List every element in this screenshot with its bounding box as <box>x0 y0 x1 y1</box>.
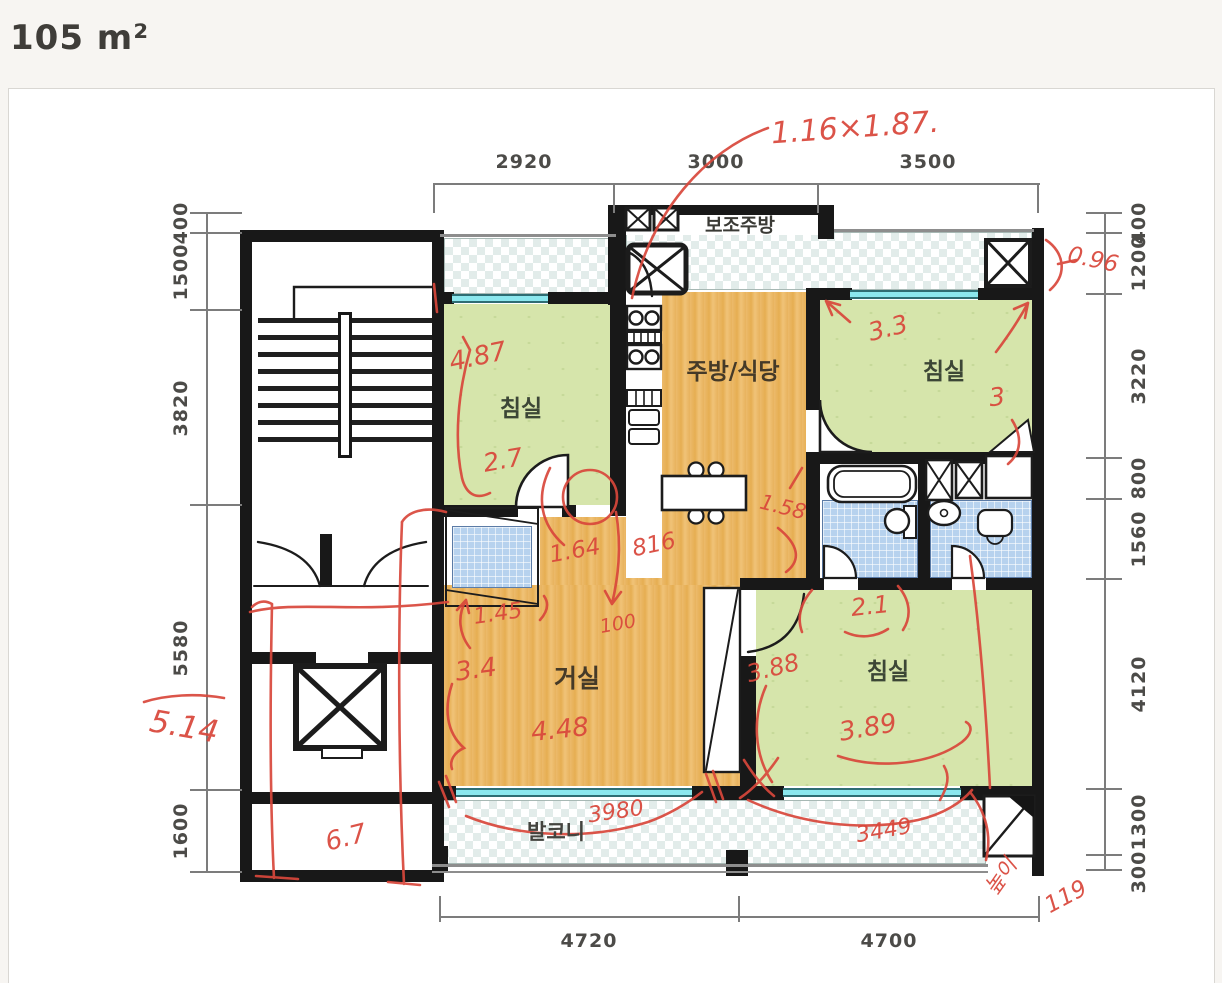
red-bracket-388 <box>740 686 778 798</box>
red-hash-living <box>439 776 456 807</box>
red-wavy-corridor <box>250 602 448 612</box>
floor-plan: 2920 3000 3500 400 1500 3820 5580 1600 4… <box>0 0 1222 982</box>
red-hash-balcony <box>706 771 723 802</box>
room-label-balcony: 발코니 <box>527 816 585 846</box>
room-label-bedroom3: 침실 <box>867 652 909 686</box>
red-circle-door <box>563 470 617 524</box>
room-label-bedroom1: 침실 <box>500 389 542 423</box>
red-arrow-bed2-right <box>996 303 1028 352</box>
room-label-sub-kitchen: 보조주방 <box>705 211 775 238</box>
red-ink-layer <box>0 0 1222 982</box>
red-vline-a <box>388 522 420 885</box>
red-vline-bed3 <box>970 556 990 788</box>
annotation-living-depth: 3.4 <box>453 652 498 687</box>
annotation-living-width: 4.48 <box>530 712 591 748</box>
room-label-living: 거실 <box>554 659 600 695</box>
red-curve-bed2-3 <box>1008 420 1019 464</box>
annotation-bed2-depth: 3 <box>988 382 1007 413</box>
red-tick-bed1-wall <box>434 284 437 312</box>
red-hook-hall <box>402 510 446 522</box>
room-label-bedroom2: 침실 <box>923 352 965 386</box>
annotation-bath-width: 2.1 <box>850 590 891 622</box>
red-arrow-100 <box>605 512 621 604</box>
red-smark-bed3 <box>940 766 947 800</box>
red-vline-b <box>252 602 298 879</box>
red-hook-34 <box>448 684 464 769</box>
room-label-kitchen: 주방/식당 <box>686 352 779 386</box>
red-arrow-bed2-left <box>826 301 850 322</box>
red-arc-hall <box>542 468 564 545</box>
red-overbar-514 <box>144 695 224 702</box>
